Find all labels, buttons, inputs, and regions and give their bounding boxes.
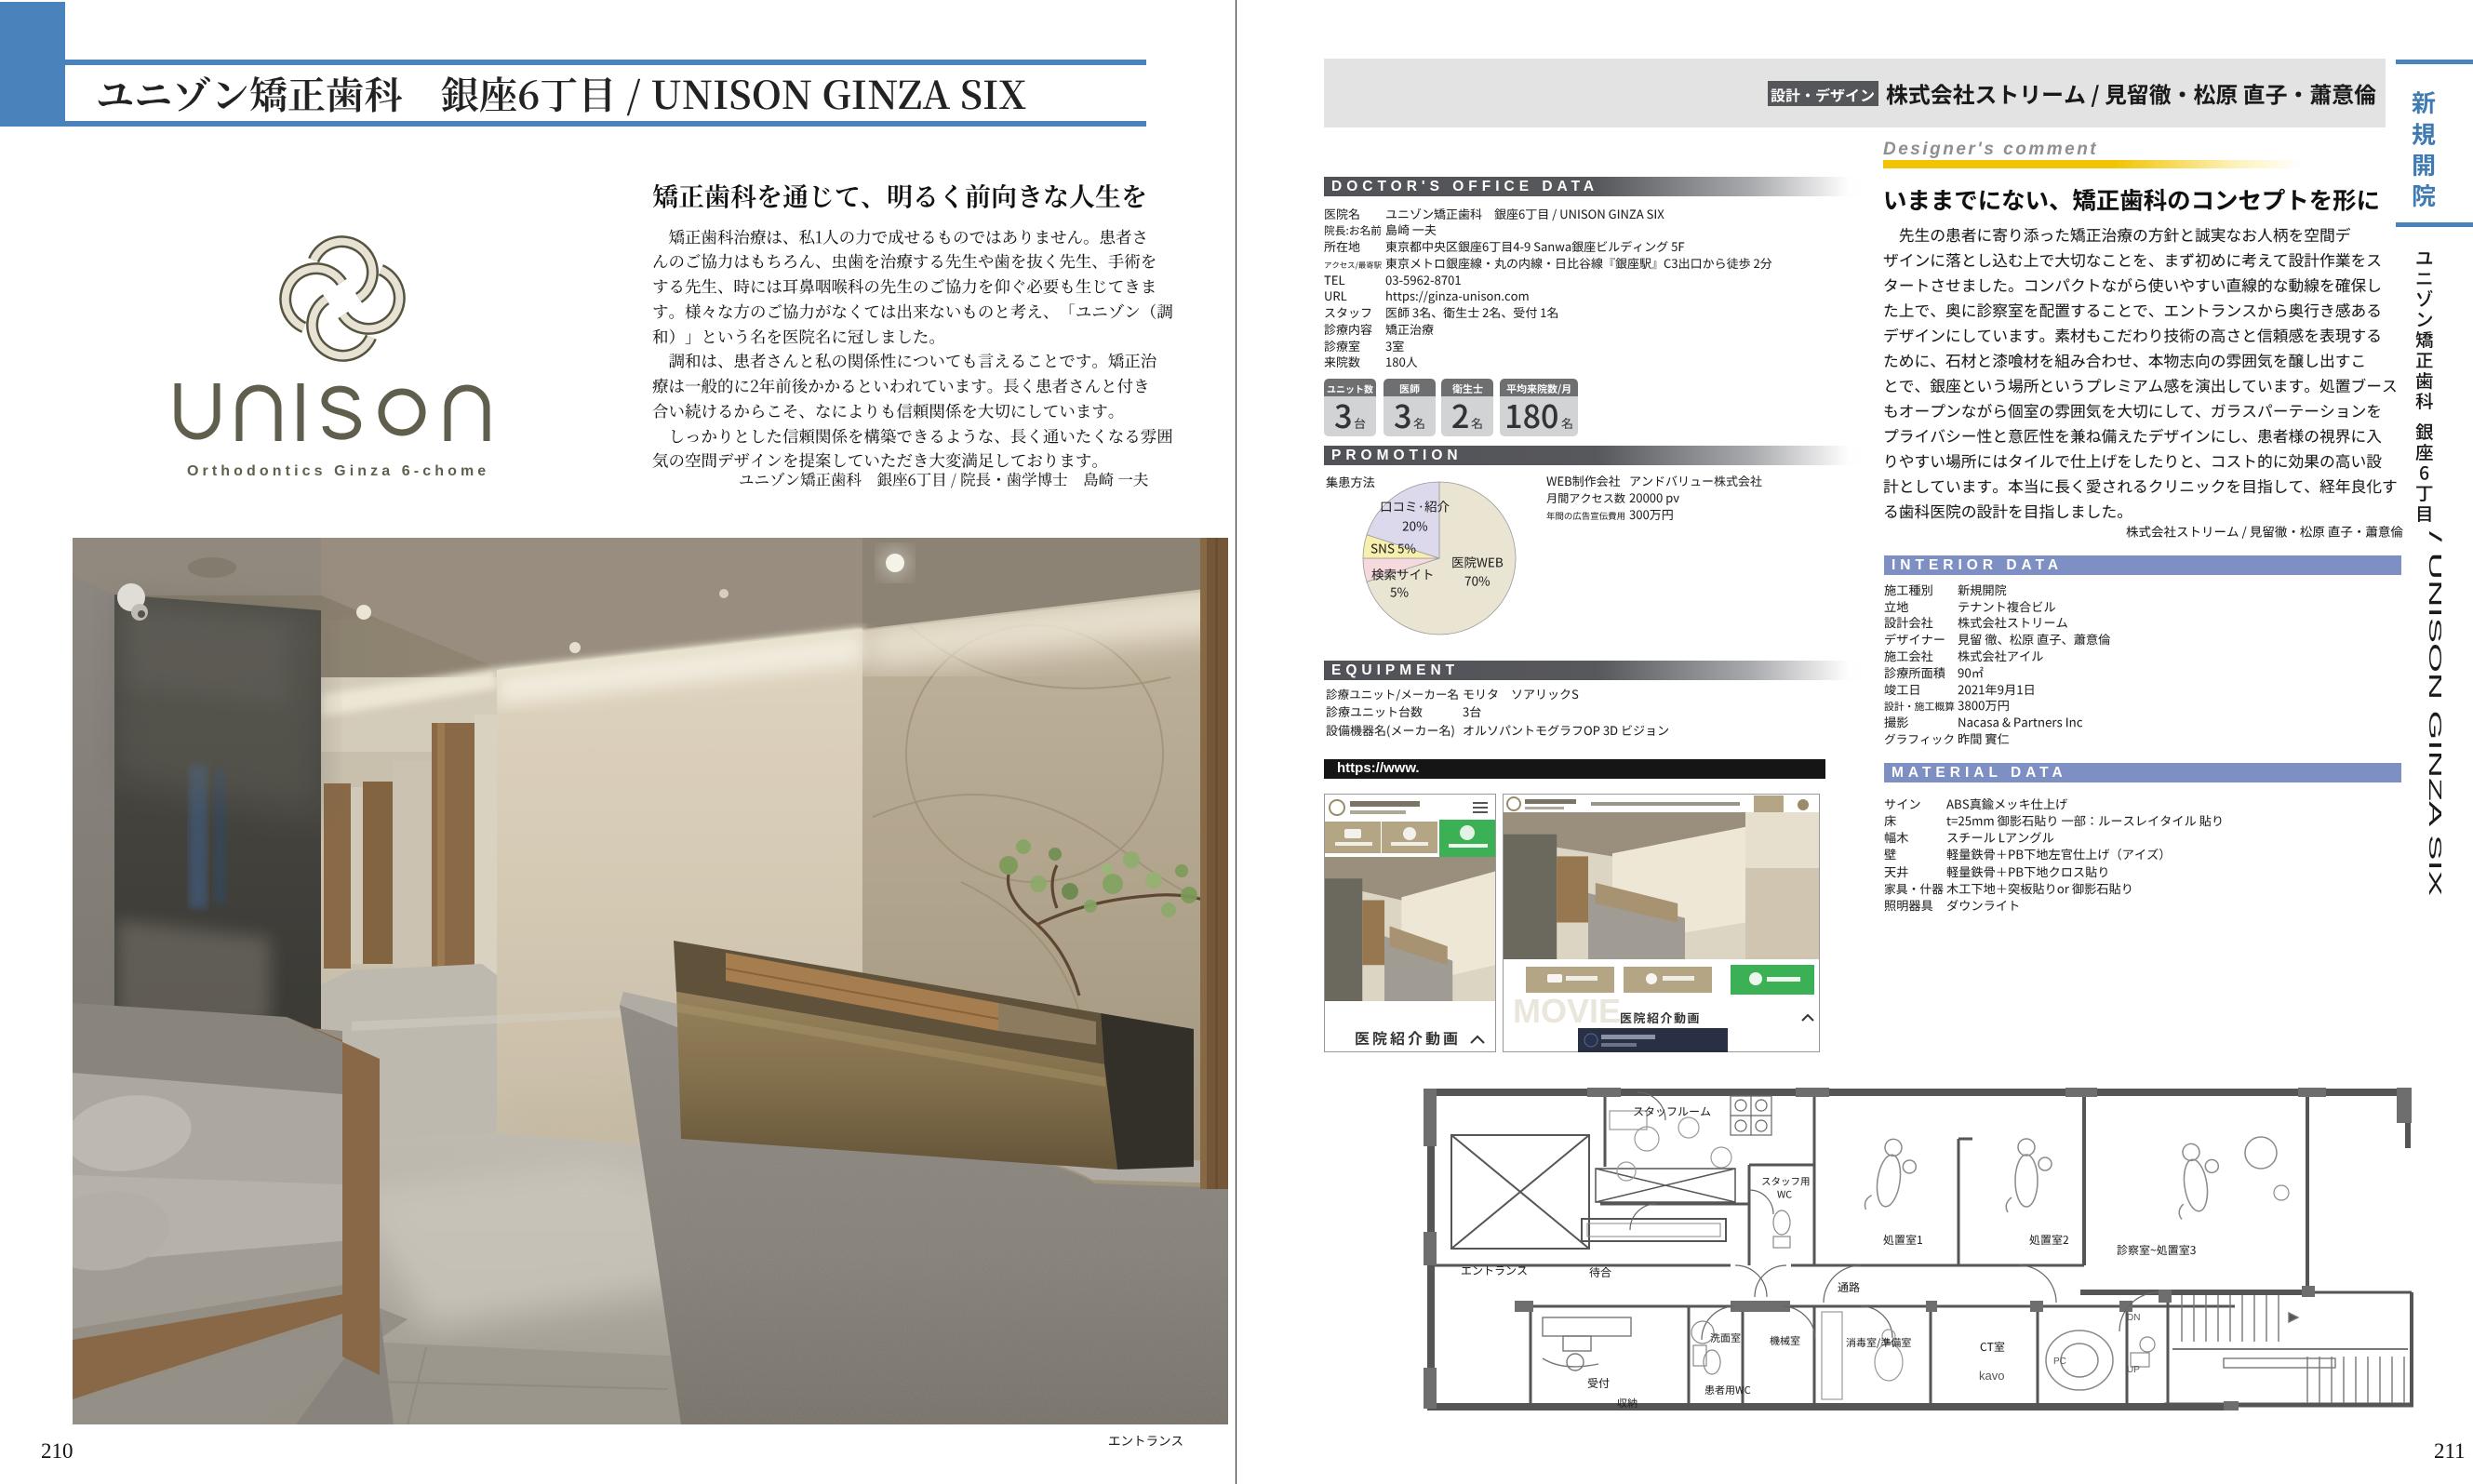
svg-text:MOVIE: MOVIE: [1513, 992, 1621, 1030]
svg-text:/ UNISON GINZA SIX: / UNISON GINZA SIX: [2426, 531, 2445, 896]
